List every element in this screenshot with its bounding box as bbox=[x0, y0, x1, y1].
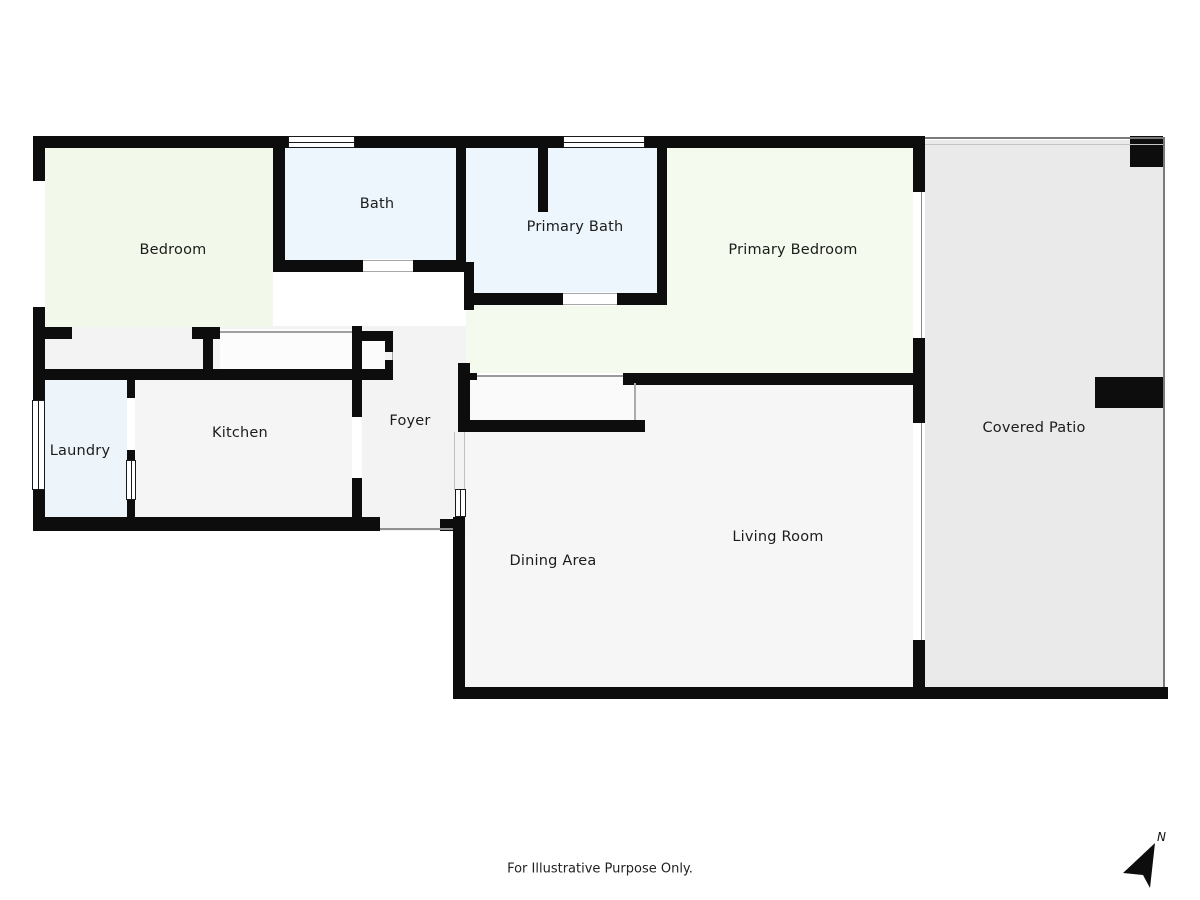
linen-closet-top-arm bbox=[362, 331, 393, 341]
nook-right-line bbox=[634, 383, 636, 420]
room-label-laundry: Laundry bbox=[50, 443, 111, 459]
closet-stem-wall bbox=[203, 339, 213, 369]
room-label-covered-patio: Covered Patio bbox=[982, 420, 1085, 436]
laundry-kitchen-wall-mid bbox=[127, 450, 135, 460]
room-fill-covered-patio bbox=[925, 140, 1163, 687]
exterior-top-wall bbox=[33, 136, 925, 148]
north-arrow-shape bbox=[1123, 843, 1155, 888]
primarybedroom-right-mid bbox=[913, 338, 925, 423]
room-label-dining-area: Dining Area bbox=[510, 553, 597, 569]
foyer-dining-line-right bbox=[464, 432, 465, 490]
exterior-left-wall-upper bbox=[33, 136, 45, 181]
linen-closet-jamb-top bbox=[385, 341, 393, 352]
kitchen-foyer-stub bbox=[352, 380, 362, 417]
primarybedroom-slider bbox=[913, 192, 925, 338]
patio-corner-post bbox=[1130, 136, 1163, 167]
primarybath-south-right bbox=[617, 293, 667, 305]
laundry-kitchen-wall-low bbox=[127, 500, 135, 517]
primarybath-window-mullion bbox=[563, 142, 645, 143]
north-arrow-icon: N bbox=[1100, 818, 1190, 900]
nook-top-line bbox=[477, 375, 623, 377]
foyer-dining-window-mullion bbox=[460, 489, 461, 517]
primarybedroom-south-wall bbox=[623, 373, 925, 385]
primarybath-stub-wall bbox=[538, 148, 548, 212]
disclaimer-text: For Illustrative Purpose Only. bbox=[507, 862, 693, 877]
nook-bottom-wall bbox=[458, 420, 645, 432]
exterior-left-wall-mid bbox=[33, 307, 45, 400]
livingroom-slider bbox=[913, 423, 925, 640]
bath-door-line-bottom bbox=[363, 271, 413, 272]
patio-right-line bbox=[1163, 137, 1165, 687]
closet-fill-entry-nook bbox=[470, 377, 635, 420]
nook-left-stub bbox=[470, 373, 477, 380]
bedroom-south-wall-left bbox=[45, 327, 72, 339]
livingroom-right-wall bbox=[913, 640, 925, 687]
linen-door-line bbox=[392, 352, 394, 360]
bedroom-bath-wall bbox=[273, 148, 285, 272]
patio-top-line-outer bbox=[925, 137, 1165, 139]
laundry-kitchen-wall-top bbox=[127, 380, 135, 398]
exterior-bottom-left-wall bbox=[33, 517, 380, 531]
room-label-bath: Bath bbox=[360, 196, 395, 212]
room-label-foyer: Foyer bbox=[389, 413, 430, 429]
closet-fill-linen bbox=[362, 341, 385, 369]
room-label-bedroom: Bedroom bbox=[140, 242, 207, 258]
dining-left-wall bbox=[453, 517, 465, 699]
room-fill-primary-bedroom bbox=[667, 148, 913, 373]
entry-door-line bbox=[380, 528, 453, 530]
room-label-primary-bedroom: Primary Bedroom bbox=[728, 242, 857, 258]
room-fill-primary-corridor bbox=[466, 305, 667, 373]
north-label: N bbox=[1157, 830, 1166, 844]
pbed-slider-line bbox=[921, 192, 923, 338]
primarybath-bedroom-wall bbox=[657, 148, 667, 305]
room-label-living-room: Living Room bbox=[732, 529, 823, 545]
patio-top-line-inner bbox=[925, 144, 1165, 145]
bath-door-line-top bbox=[363, 260, 413, 261]
bath-south-wall-left bbox=[273, 260, 363, 272]
patio-side-block bbox=[1095, 377, 1163, 408]
room-fill-foyer bbox=[362, 380, 466, 531]
room-fill-bedroom bbox=[45, 148, 273, 327]
foyer-dining-line-left bbox=[454, 432, 455, 490]
primarybedroom-right-top bbox=[913, 136, 925, 192]
primarybath-south-left bbox=[466, 293, 563, 305]
exterior-bottom-wall bbox=[453, 687, 1168, 699]
pbath-door-line-top bbox=[563, 293, 617, 294]
kitchen-foyer-wall-lower bbox=[352, 478, 362, 531]
kitchen-north-wall bbox=[33, 369, 393, 380]
bedroom-closet-line bbox=[220, 331, 352, 333]
pbath-door-line-bottom bbox=[563, 304, 617, 305]
living-slider-line bbox=[921, 423, 923, 640]
room-label-kitchen: Kitchen bbox=[212, 425, 268, 441]
laundry-kitchen-window-mullion bbox=[131, 460, 132, 500]
laundry-window-mullion bbox=[38, 400, 39, 490]
room-label-primary-bath: Primary Bath bbox=[527, 219, 624, 235]
room-fill-kitchen bbox=[135, 380, 352, 517]
closet-fill-bedroom bbox=[220, 329, 352, 369]
floorplan-canvas: BedroomBathPrimary BathPrimary BedroomCo… bbox=[0, 0, 1200, 900]
bath-window-mullion bbox=[288, 142, 355, 143]
bath-primarybath-wall bbox=[456, 148, 466, 262]
bedroom-south-wall-mid bbox=[192, 327, 220, 339]
